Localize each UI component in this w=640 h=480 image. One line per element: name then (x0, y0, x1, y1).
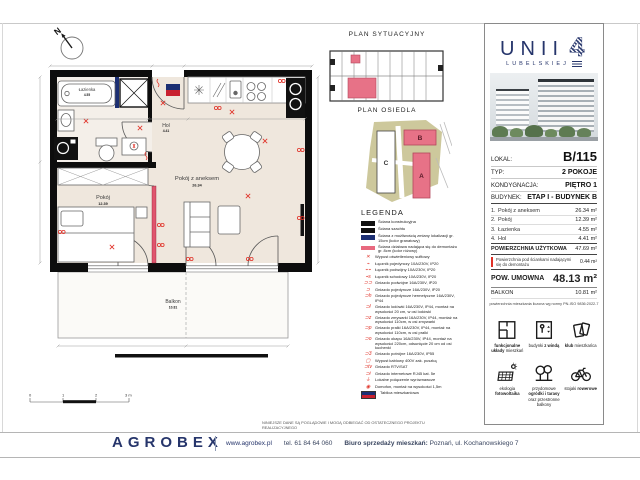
symbol-glyph: ◉ (361, 385, 375, 390)
logo-stripes (572, 61, 582, 67)
symbol-glyph: ⌁ (361, 262, 375, 267)
red-tick (491, 257, 493, 267)
svg-text:2: 2 (95, 393, 98, 398)
room-label-pokoj-z-aneksem: Pokój z aneksem (175, 176, 219, 182)
norm-note: powierzchnia mieszkania liczona wg normy… (485, 302, 603, 306)
footer-divider (215, 436, 216, 451)
legend-symbol-item: ◉Domofon, montaż na wysokości 1,5m (361, 385, 459, 390)
offer-card: UNII 4 LUBELSKIEJ LOKAL: (484, 23, 604, 425)
elevator-icon (533, 319, 555, 341)
unii-lubelskiej-logo: UNII 4 (485, 33, 603, 59)
tv (301, 204, 305, 236)
situational-plan-title: PLAN SYTUACYJNY (328, 31, 446, 38)
info-row-lokal: LOKAL: B/115 (491, 146, 597, 167)
disclaimer-text: NINIEJSZE DANE SĄ POGLĄDOWE I MOGĄ ODBIE… (262, 420, 460, 430)
svg-text:4: 4 (569, 33, 584, 59)
legend-symbol-item: ⌁Łącznik pojedynczy 10A/230V, IP20 (361, 262, 459, 267)
symbol-glyph: ⊃o (361, 337, 375, 342)
overall-dimension-bar (115, 354, 268, 358)
phone-number: tel. 61 84 64 060 (284, 440, 332, 447)
symbol-glyph: ▢ (361, 359, 375, 364)
legend-wall-item: Ściana z możliwością zmiany lokalizacji … (361, 234, 459, 243)
info-row-typ: TYP: 2 POKOJE (491, 167, 597, 180)
sales-office: Biuro sprzedaży mieszkań: Poznań, ul. Ko… (344, 440, 518, 447)
svg-text:B: B (418, 135, 423, 142)
left-rule (2, 23, 3, 432)
legend-symbol-item: ⊃pGniazdo pralki 16A/230V, IP44, montaż … (361, 326, 459, 335)
svg-text:1: 1 (62, 393, 65, 398)
legend-symbol-item: ⊃3Gniazdo potrójne 16A/230V, IP55 (361, 352, 459, 357)
footer-top-rule (0, 432, 640, 433)
balcony-area-row: BALKON 10.81 m² (491, 288, 597, 299)
info-row-budynek: BUDYNEK: ETAP I - BUDYNEK B (491, 192, 597, 205)
highlighted-unit (348, 78, 376, 98)
feature-floorplans: funkcjonalne układy mieszkań (490, 319, 525, 354)
svg-text:12.39: 12.39 (98, 202, 108, 206)
legend-symbol-item: ⊃Gniazdo pojedyncze 16A/230V, IP20 (361, 288, 459, 293)
symbol-glyph: ✕ (361, 255, 375, 260)
wall-swatch-pink (361, 246, 375, 251)
footer-bottom-rule (0, 457, 640, 458)
pink-demountable-wall (152, 186, 156, 263)
svg-text:0: 0 (29, 393, 32, 398)
symbol-glyph: ⊃ (361, 288, 375, 293)
solar-panel-icon (496, 362, 518, 384)
symbol-glyph: ⌁⌁ (361, 268, 375, 273)
logo-number-4: 4 (566, 33, 588, 59)
symbol-glyph: ⌁s (361, 275, 375, 280)
legend-symbol-item: Tablica mieszkaniowa (361, 391, 459, 399)
floor-plan: Łazienka 4.55 Hol 4.41 Pokój 12.39 Pokój… (25, 55, 325, 365)
situational-plan (328, 45, 446, 105)
symbol-glyph: ⊃h (361, 294, 375, 299)
legend-symbol-item: ⌁⌁Łącznik podwójny 10A/230V, IP20 (361, 268, 459, 273)
club-cards-icon (570, 319, 592, 341)
svg-text:A: A (419, 173, 424, 180)
building-photo (490, 73, 598, 141)
apartment-panel-swatch (361, 391, 376, 399)
symbol-glyph: ⊃i (361, 372, 375, 377)
tall-appliance (286, 78, 305, 118)
symbol-glyph: ⊃l (361, 305, 375, 310)
bicycle-icon (570, 362, 592, 384)
wall-swatch-black (361, 221, 375, 226)
wall-swatch-navy (361, 235, 375, 240)
legend-wall-item: Ściana konstrukcyjna (361, 220, 459, 226)
svg-text:4.55: 4.55 (84, 93, 90, 97)
svg-text:10.81: 10.81 (169, 306, 178, 310)
apartment-panel-flag (166, 84, 180, 96)
svg-text:C: C (384, 160, 389, 167)
feature-bike-racks: stojaki rowerowe (563, 362, 598, 407)
features-grid: funkcjonalne układy mieszkań budynki z w… (490, 319, 598, 408)
legend-symbol-item: ⌁sŁącznik schodowy 10A/230V, IP20 (361, 275, 459, 280)
floor-plan-icon (496, 319, 518, 341)
agrobex-logo: AGROBEX (112, 434, 223, 451)
table-row: 1. Pokój z aneksem 26.34 m² (491, 206, 597, 216)
scale-bar: 0 1 2 3 m (25, 392, 140, 412)
logo-subtext: LUBELSKIEJ (506, 61, 569, 67)
feature-resident-club: klub mieszkańca (563, 319, 598, 354)
unit-number: B/115 (563, 149, 597, 164)
rooms-table: 1. Pokój z aneksem 26.34 m² 2. Pokój 12.… (491, 206, 597, 244)
feature-elevator: budynki z windą (527, 319, 562, 354)
info-row-kondygnacja: KONDYGNACJA: PIĘTRO 1 (491, 179, 597, 192)
svg-text:3 m: 3 m (125, 393, 132, 398)
photo-road (490, 137, 598, 141)
photo-trees (490, 124, 598, 137)
legend: Ściana konstrukcyjna Ściana szachtu Ścia… (361, 220, 459, 401)
legend-title: LEGENDA (361, 208, 404, 217)
contract-area-value: 48.13 m² (553, 273, 597, 285)
symbol-glyph: ⊃z (361, 316, 375, 321)
right-rule (637, 23, 638, 432)
feature-photovoltaics: ekologia fotowoltaika (490, 362, 525, 407)
north-label: N (52, 25, 63, 37)
contract-area-row: POW. UMOWNA 48.13 m² (491, 270, 597, 288)
wall-swatch-black (361, 228, 375, 233)
legend-symbol-item: ⊃hGniazdo pojedyncze hermetyczne 16A/230… (361, 294, 459, 303)
footer-contact: www.agrobex.pl tel. 61 84 64 060 Biuro s… (226, 440, 519, 447)
symbol-glyph: ⊃p (361, 326, 375, 331)
legend-symbol-item: ⊃iGniazdo internetowe RJ45 kat. 5e (361, 372, 459, 377)
symbol-glyph: ⊃3 (361, 352, 375, 357)
table-row: 3. Łazienka 4.55 m² (491, 225, 597, 235)
room-label-lazienka: Łazienka (79, 87, 96, 92)
usable-area-row: POWIERZCHNIA UŻYTKOWA 47.69 m² (491, 243, 597, 255)
legend-wall-item: Ściana działowa nadająca się do demontaż… (361, 245, 459, 254)
logo-text: UNII (500, 39, 564, 59)
washing-machine (54, 137, 78, 160)
svg-text:4.41: 4.41 (163, 129, 170, 133)
website-link[interactable]: www.agrobex.pl (226, 440, 272, 447)
legend-wall-item: Ściana szachtu (361, 227, 459, 233)
trees-icon (533, 362, 555, 384)
svg-text:26.34: 26.34 (192, 184, 202, 188)
legend-symbol-item: ⏚Lokalne połączenie wyrównawcze (361, 378, 459, 383)
navy-wall (115, 77, 119, 108)
svg-text:Pokój: Pokój (96, 195, 110, 201)
demountable-area-row: Powierzchnia pod ściankami nadającymi si… (491, 255, 597, 270)
shaft (120, 79, 148, 107)
room-label-balkon: Balkon (165, 299, 181, 305)
symbol-glyph: ⊃tv (361, 365, 375, 370)
symbol-glyph: ⊃⊃ (361, 281, 375, 286)
legend-symbol-item: ⊃⊃Gniazdo podwójne 16A/230V, IP20 (361, 281, 459, 286)
legend-symbol-item: ⊃oGniazdo okapu 16A/230V, IP44, montaż n… (361, 337, 459, 351)
table-row: 2. Pokój 12.39 m² (491, 216, 597, 226)
estate-plan: C B A (352, 118, 452, 206)
unit-info: LOKAL: B/115 TYP: 2 POKOJE KONDYGNACJA: … (491, 146, 597, 204)
legend-symbol-item: ⊃zGniazdo zmywarki 16A/230V, IP44, monta… (361, 316, 459, 325)
legend-symbol-item: ✕Wypust oświetleniowy sufitowy (361, 255, 459, 260)
feature-gardens: przydomowe ogródki i tarasy oraz przestr… (527, 362, 562, 407)
legend-symbol-item: ⊃tvGniazdo RTV/SAT (361, 365, 459, 370)
legend-symbol-item: ▢Wypust kablowy 400V zak. puszką (361, 359, 459, 364)
estate-plan-title: PLAN OSIEDLA (328, 107, 446, 114)
symbol-glyph: ⏚ (361, 378, 375, 383)
legend-symbol-item: ⊃lGniazdo lodówki 16A/230V, IP44, montaż… (361, 305, 459, 314)
